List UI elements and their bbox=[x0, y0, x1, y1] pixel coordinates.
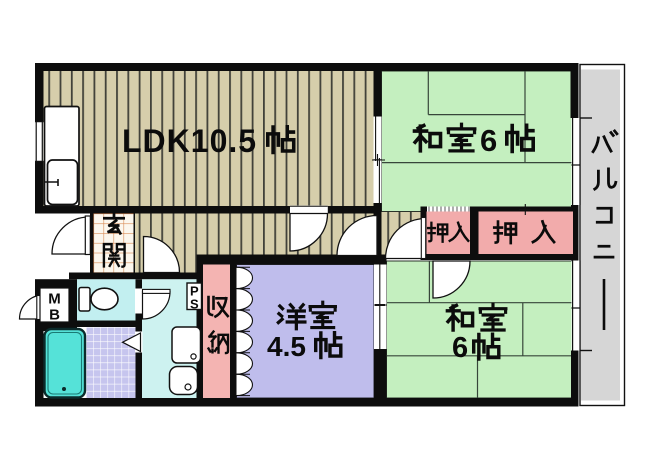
svg-text:LDK10.5: LDK10.5 bbox=[122, 123, 257, 159]
svg-text:B: B bbox=[49, 307, 60, 324]
svg-text:6: 6 bbox=[480, 123, 497, 158]
svg-text:S: S bbox=[190, 296, 199, 311]
svg-text:4.5: 4.5 bbox=[267, 331, 306, 362]
svg-text:6: 6 bbox=[452, 332, 468, 364]
svg-text:M: M bbox=[48, 291, 61, 308]
